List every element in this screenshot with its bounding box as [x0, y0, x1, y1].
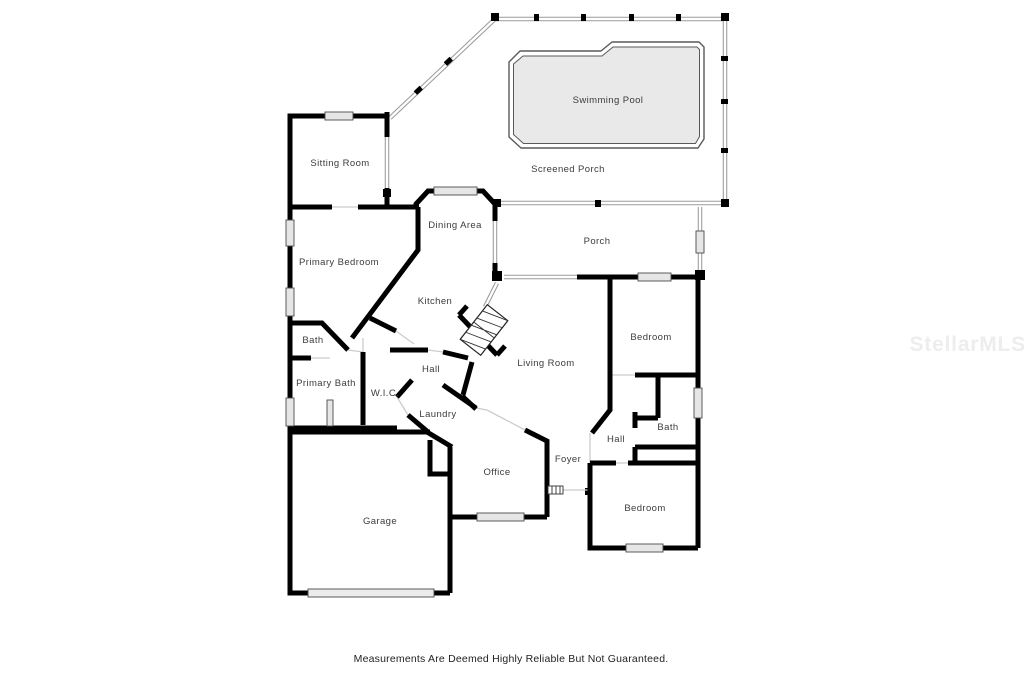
label-hall-center: Hall — [422, 364, 440, 375]
label-porch: Porch — [584, 236, 611, 247]
label-laundry: Laundry — [419, 409, 456, 420]
stellar-mls-watermark: StellarMLS — [909, 333, 1024, 356]
label-living-room: Living Room — [517, 358, 574, 369]
label-bedroom-right: Bedroom — [630, 332, 671, 343]
label-wic: W.I.C. — [371, 388, 399, 399]
label-hall-right: Hall — [607, 434, 625, 445]
label-bedroom-bottom: Bedroom — [624, 503, 665, 514]
label-primary-bath: Primary Bath — [296, 378, 356, 389]
label-sitting-room: Sitting Room — [310, 158, 369, 169]
floor-plan-page: Swimming Pool Screened Porch Sitting Roo… — [0, 0, 1024, 682]
label-primary-bedroom: Primary Bedroom — [299, 257, 379, 268]
disclaimer-text: Measurements Are Deemed Highly Reliable … — [354, 653, 669, 665]
label-screened-porch: Screened Porch — [531, 164, 605, 175]
label-foyer: Foyer — [555, 454, 581, 465]
label-dining-area: Dining Area — [428, 220, 482, 231]
label-garage: Garage — [363, 516, 397, 527]
label-swimming-pool: Swimming Pool — [573, 95, 644, 106]
front-door — [548, 486, 563, 494]
label-bath-left: Bath — [302, 335, 323, 346]
label-bath-right: Bath — [657, 422, 678, 433]
label-office: Office — [483, 467, 510, 478]
label-kitchen: Kitchen — [418, 296, 453, 307]
floor-plan-svg: Swimming Pool Screened Porch Sitting Roo… — [0, 0, 1024, 682]
